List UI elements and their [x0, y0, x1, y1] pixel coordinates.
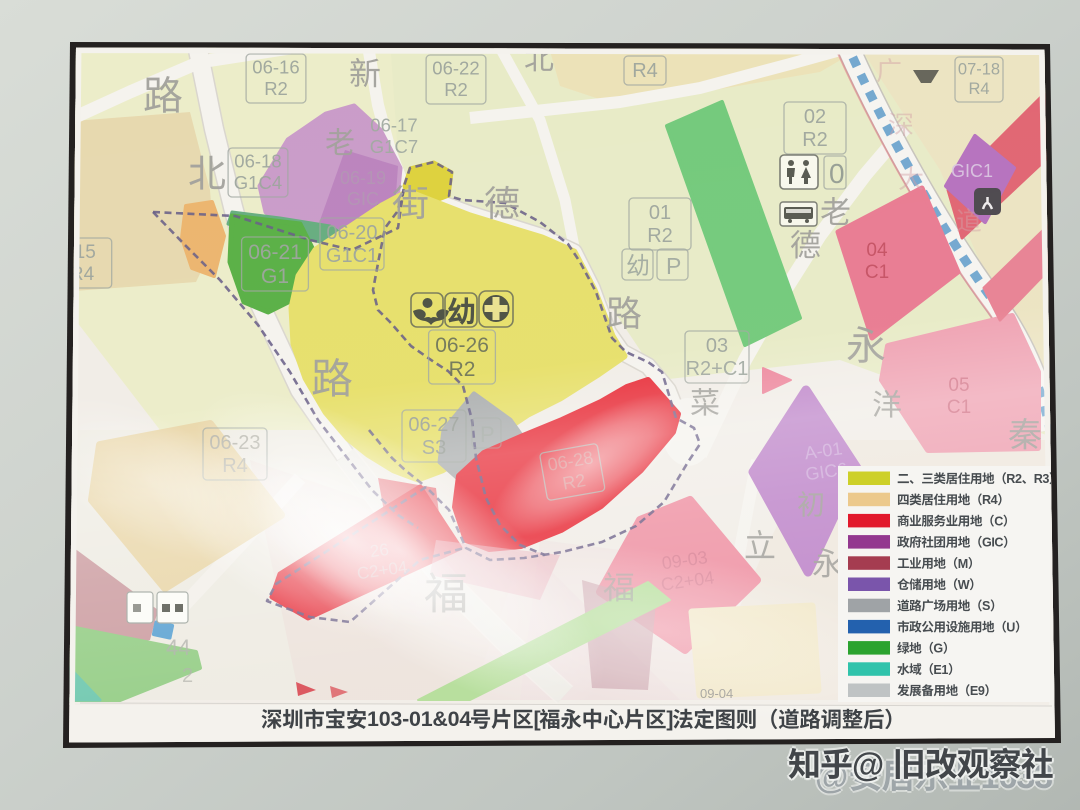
svg-text:C: C: [994, 514, 1003, 528]
svg-text:R3: R3: [1034, 472, 1050, 486]
svg-text:E1: E1: [933, 663, 948, 677]
svg-text:R2: R2: [1006, 472, 1022, 486]
svg-text:GIC: GIC: [982, 536, 1003, 550]
svg-text:@: @: [852, 746, 883, 783]
svg-text:U: U: [1006, 620, 1015, 634]
svg-text:[: [: [534, 707, 541, 731]
svg-text:G: G: [933, 642, 943, 656]
svg-text:W: W: [958, 578, 970, 592]
svg-text:S: S: [982, 599, 990, 613]
svg-text:M: M: [958, 557, 968, 571]
svg-text:103-01&04: 103-01&04: [367, 707, 471, 731]
svg-text:R4: R4: [982, 493, 998, 507]
svg-text:E9: E9: [970, 684, 985, 698]
svg-text:]: ]: [666, 707, 673, 731]
